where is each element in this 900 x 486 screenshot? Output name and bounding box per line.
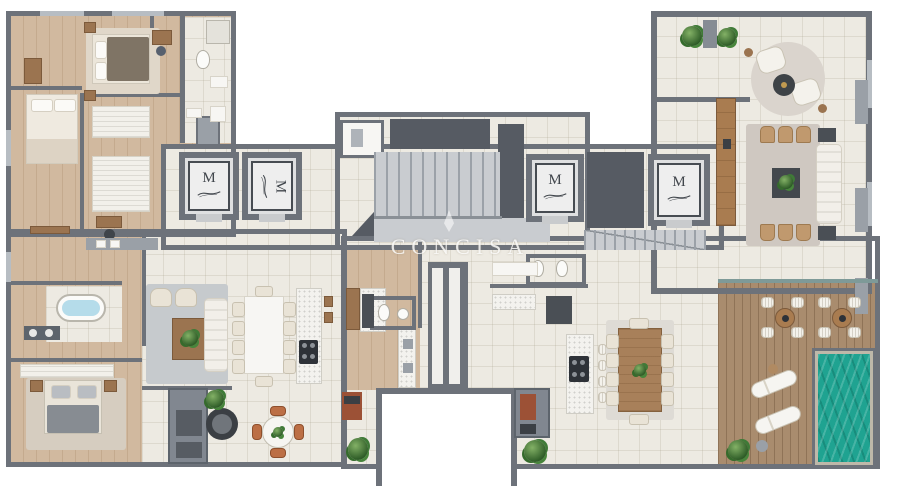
wardrobe-master	[20, 364, 114, 378]
pillow	[95, 62, 107, 80]
deck-chair	[848, 297, 861, 308]
nightstand	[84, 22, 96, 33]
terrace-sink	[176, 410, 202, 436]
elevator-2: M	[242, 152, 302, 220]
bidet	[556, 260, 568, 277]
deck-chair	[818, 297, 831, 308]
deck-chair	[761, 327, 774, 338]
deck-chair	[848, 327, 861, 338]
elevator-door	[666, 220, 692, 228]
elevator-4: M	[648, 154, 710, 226]
brand-swoosh-icon	[666, 193, 692, 202]
wall-bath-divider	[180, 15, 185, 143]
planter-box	[703, 20, 717, 48]
duct-panel	[432, 268, 443, 384]
plant-icon	[779, 175, 793, 189]
wardrobe-2	[92, 156, 150, 212]
nightstand	[30, 380, 43, 392]
pool	[818, 354, 870, 462]
elevator-door	[259, 214, 285, 222]
side-table	[756, 440, 768, 452]
sink	[186, 108, 202, 118]
lounge-chair-tan	[760, 224, 775, 241]
sink	[210, 76, 228, 88]
dining-chair	[661, 391, 674, 406]
plant-icon	[682, 26, 702, 46]
staircase-main	[374, 152, 500, 218]
egg-chair	[206, 408, 238, 440]
armchair	[175, 288, 197, 307]
nightstand	[84, 90, 96, 101]
side-table-dark	[818, 128, 836, 142]
bed-blanket	[107, 37, 149, 81]
dining-table-left	[244, 296, 284, 374]
lounge-chair-tan	[760, 126, 775, 143]
dining-chair	[283, 321, 296, 336]
pilaster	[855, 188, 868, 232]
bathtub-water	[62, 300, 100, 316]
duct-shaft	[428, 262, 468, 390]
desk	[152, 30, 172, 45]
lounge-chair-tan	[796, 126, 811, 143]
brand-logo: M	[257, 173, 288, 199]
powder-cabinet	[362, 294, 374, 328]
side-table	[768, 364, 778, 374]
plant-icon	[524, 440, 546, 462]
terrace-chair	[270, 406, 286, 416]
dining-chair	[661, 353, 674, 368]
table-decor	[782, 315, 789, 322]
deck-chair	[761, 297, 774, 308]
brand-logo: M	[542, 173, 568, 204]
stair-rail	[374, 216, 502, 219]
lounger-fold	[763, 380, 770, 394]
wall-suite-top	[10, 358, 142, 362]
deck-chair	[791, 327, 804, 338]
pilaster	[855, 80, 868, 124]
pilaster	[855, 278, 868, 314]
dining-chair	[255, 376, 273, 387]
desk-chair	[156, 46, 166, 56]
wall-bedroom2-top	[10, 86, 82, 90]
elevator-car: M	[535, 163, 575, 213]
bar-stool	[324, 312, 333, 323]
dining-chair	[661, 372, 674, 387]
armchair	[150, 288, 172, 307]
appliance	[403, 339, 413, 349]
kitchen-cabinet	[346, 288, 360, 330]
duct-panel	[449, 268, 460, 384]
bed-blanket	[47, 405, 99, 433]
side-table-dark	[818, 226, 836, 240]
elevator-1: M	[179, 152, 239, 220]
dining-chair	[606, 334, 619, 349]
pool-wall	[812, 348, 876, 468]
dining-chair	[629, 318, 649, 329]
dining-chair	[232, 340, 245, 355]
side-table	[744, 48, 753, 57]
pillow	[95, 41, 107, 59]
egg-chair-cushion	[212, 414, 232, 434]
brand-logo: M	[666, 175, 692, 206]
vanity-desk	[24, 58, 42, 84]
lounger-fold	[767, 416, 774, 430]
lounge-chair-tan	[796, 224, 811, 241]
bath-vanity	[24, 326, 60, 340]
bathtub	[56, 294, 106, 322]
bbq-grill	[342, 392, 362, 420]
elevator-car: M	[251, 161, 293, 211]
plant-icon	[728, 440, 748, 460]
brand-logo: M	[196, 171, 222, 202]
toilet	[196, 50, 210, 69]
elevator-logo-letter: M	[196, 171, 222, 186]
building-notch	[380, 392, 513, 486]
dining-chair	[606, 372, 619, 387]
brand-swoosh-icon	[261, 173, 270, 199]
elevator-door	[542, 216, 568, 224]
nightstand	[104, 380, 117, 392]
shaft-between-elevators	[587, 152, 644, 228]
round-sink	[397, 308, 409, 320]
terrace-chair	[270, 448, 286, 458]
dining-chair	[283, 359, 296, 374]
wall-notch-left	[376, 388, 382, 486]
toilet	[378, 304, 390, 321]
console-table	[30, 226, 70, 234]
sink	[29, 329, 37, 337]
deck-chair	[791, 297, 804, 308]
washer	[96, 240, 106, 248]
terrace-chair	[252, 424, 262, 440]
plant-icon	[718, 28, 736, 46]
dining-chair	[606, 353, 619, 368]
window	[6, 252, 11, 282]
elevator-car: M	[188, 161, 230, 211]
deck-table	[832, 308, 852, 328]
glass-rail	[718, 279, 878, 283]
sideboard	[716, 98, 736, 226]
pillow	[54, 99, 76, 112]
decor-item	[723, 139, 731, 149]
laundry-counter	[86, 238, 158, 250]
floor-plan: M M M M	[0, 0, 900, 486]
terrace-chair	[294, 424, 304, 440]
wall-bath2-top	[10, 281, 122, 285]
side-table	[818, 104, 827, 113]
deck-chair	[818, 327, 831, 338]
range-hood	[546, 296, 572, 324]
plant-icon	[348, 438, 368, 460]
bed-throw	[27, 139, 77, 163]
dining-chair	[661, 334, 674, 349]
wardrobe-1	[92, 106, 150, 138]
dining-chair	[255, 286, 273, 297]
elevator-logo-letter: M	[542, 173, 568, 188]
pool-coping	[815, 351, 873, 465]
lounge-chair-tan	[778, 126, 793, 143]
brand-swoosh-icon	[542, 191, 568, 200]
dining-chair	[629, 414, 649, 425]
watermark: CONCISA	[385, 234, 535, 260]
round-coffee-table	[773, 74, 795, 96]
powder-room	[370, 296, 416, 330]
plant-icon	[182, 330, 198, 346]
lounge-chair-tan	[778, 224, 793, 241]
desk	[96, 216, 122, 228]
elevator-logo-letter: M	[666, 175, 692, 190]
window	[112, 11, 164, 16]
pillow	[31, 99, 53, 112]
sink	[45, 329, 53, 337]
pillow	[51, 385, 71, 399]
sofa-left-unit	[204, 298, 228, 372]
elevator-3: M	[526, 154, 584, 222]
table-decor	[781, 82, 787, 88]
appliance	[403, 363, 413, 373]
utility-fixture	[351, 129, 363, 147]
terrace-cabinet	[168, 388, 208, 464]
kitchen-counter-right-upper	[492, 262, 538, 276]
plant-icon	[206, 390, 224, 408]
dryer	[110, 240, 120, 248]
deck-table	[775, 308, 795, 328]
wall-bedroom-vertical	[80, 93, 84, 233]
washer	[210, 106, 226, 122]
kitchen-counter-right	[492, 294, 536, 310]
bbq-grill	[520, 394, 536, 420]
pillow	[77, 385, 97, 399]
dining-chair	[232, 359, 245, 374]
window	[40, 11, 84, 16]
dining-chair	[232, 321, 245, 336]
elevator-car: M	[657, 163, 701, 217]
dining-chair	[283, 340, 296, 355]
window	[6, 130, 11, 166]
staircase-service	[584, 230, 706, 250]
kitchen-island-left	[296, 288, 322, 384]
bed-double-2	[26, 94, 78, 164]
brand-swoosh-icon	[196, 189, 222, 198]
cooktop	[569, 356, 589, 382]
table-decor	[839, 315, 846, 322]
shaft-top	[390, 119, 490, 149]
dining-chair	[232, 302, 245, 317]
bar-stool	[324, 296, 333, 307]
plant-icon	[273, 427, 283, 437]
terrace-storage	[176, 442, 202, 458]
elevator-door	[196, 214, 222, 222]
kitchen-counter-strip	[398, 328, 416, 388]
grill-grate	[344, 396, 360, 404]
plant-icon	[634, 364, 646, 376]
dining-chair	[283, 302, 296, 317]
grill-grate	[520, 424, 536, 434]
dining-chair	[606, 391, 619, 406]
bbq-counter	[514, 388, 550, 438]
cooktop	[299, 340, 318, 364]
bed-double-1	[92, 34, 150, 84]
sofa-right-unit	[816, 144, 842, 224]
shower	[206, 20, 230, 44]
elevator-logo-letter: M	[273, 173, 288, 199]
bed-master	[44, 380, 102, 434]
